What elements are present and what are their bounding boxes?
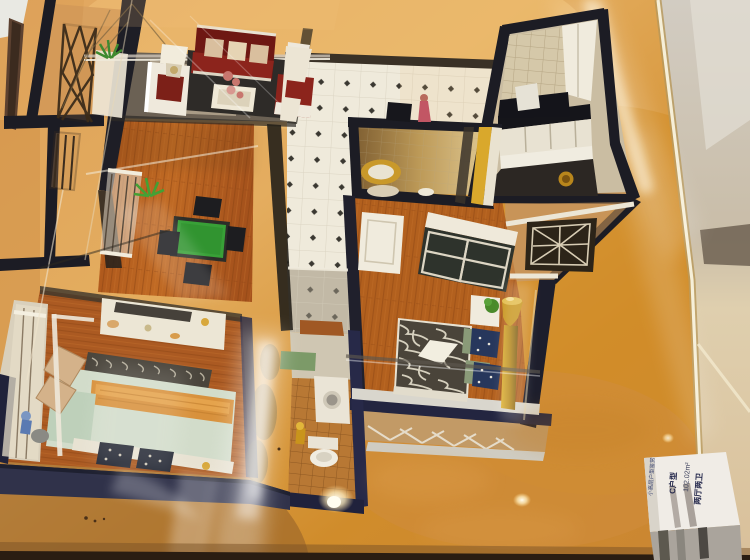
svg-text:C户型: C户型 [667, 472, 678, 494]
